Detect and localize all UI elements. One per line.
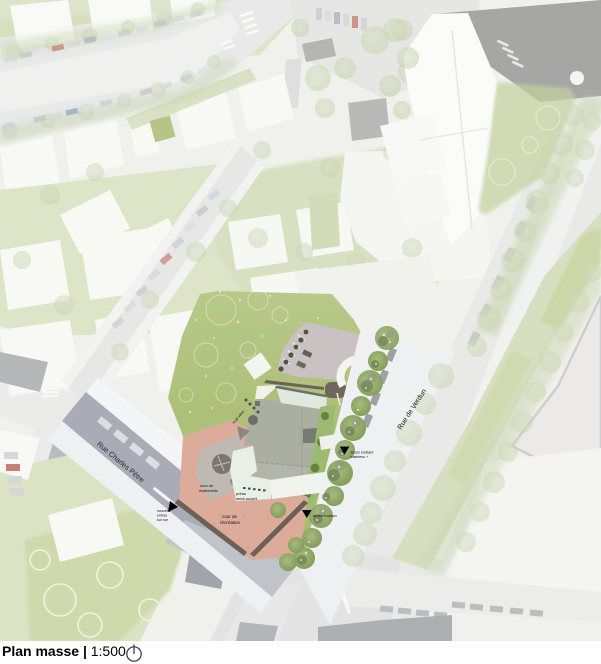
svg-text:maintenu +: maintenu + <box>351 455 369 459</box>
svg-text:entrée: entrée <box>157 514 167 518</box>
svg-text:accès existant: accès existant <box>351 451 374 455</box>
svg-text:maternelle: maternelle <box>199 488 218 493</box>
svg-text:accès livraison: accès livraison <box>313 514 337 518</box>
svg-text:cour de: cour de <box>222 514 238 519</box>
svg-text:sur rue: sur rue <box>157 518 168 522</box>
svg-text:nouvelle: nouvelle <box>157 509 170 513</box>
svg-text:semi-ouvert: semi-ouvert <box>236 496 258 501</box>
svg-text:récréation: récréation <box>220 520 241 525</box>
